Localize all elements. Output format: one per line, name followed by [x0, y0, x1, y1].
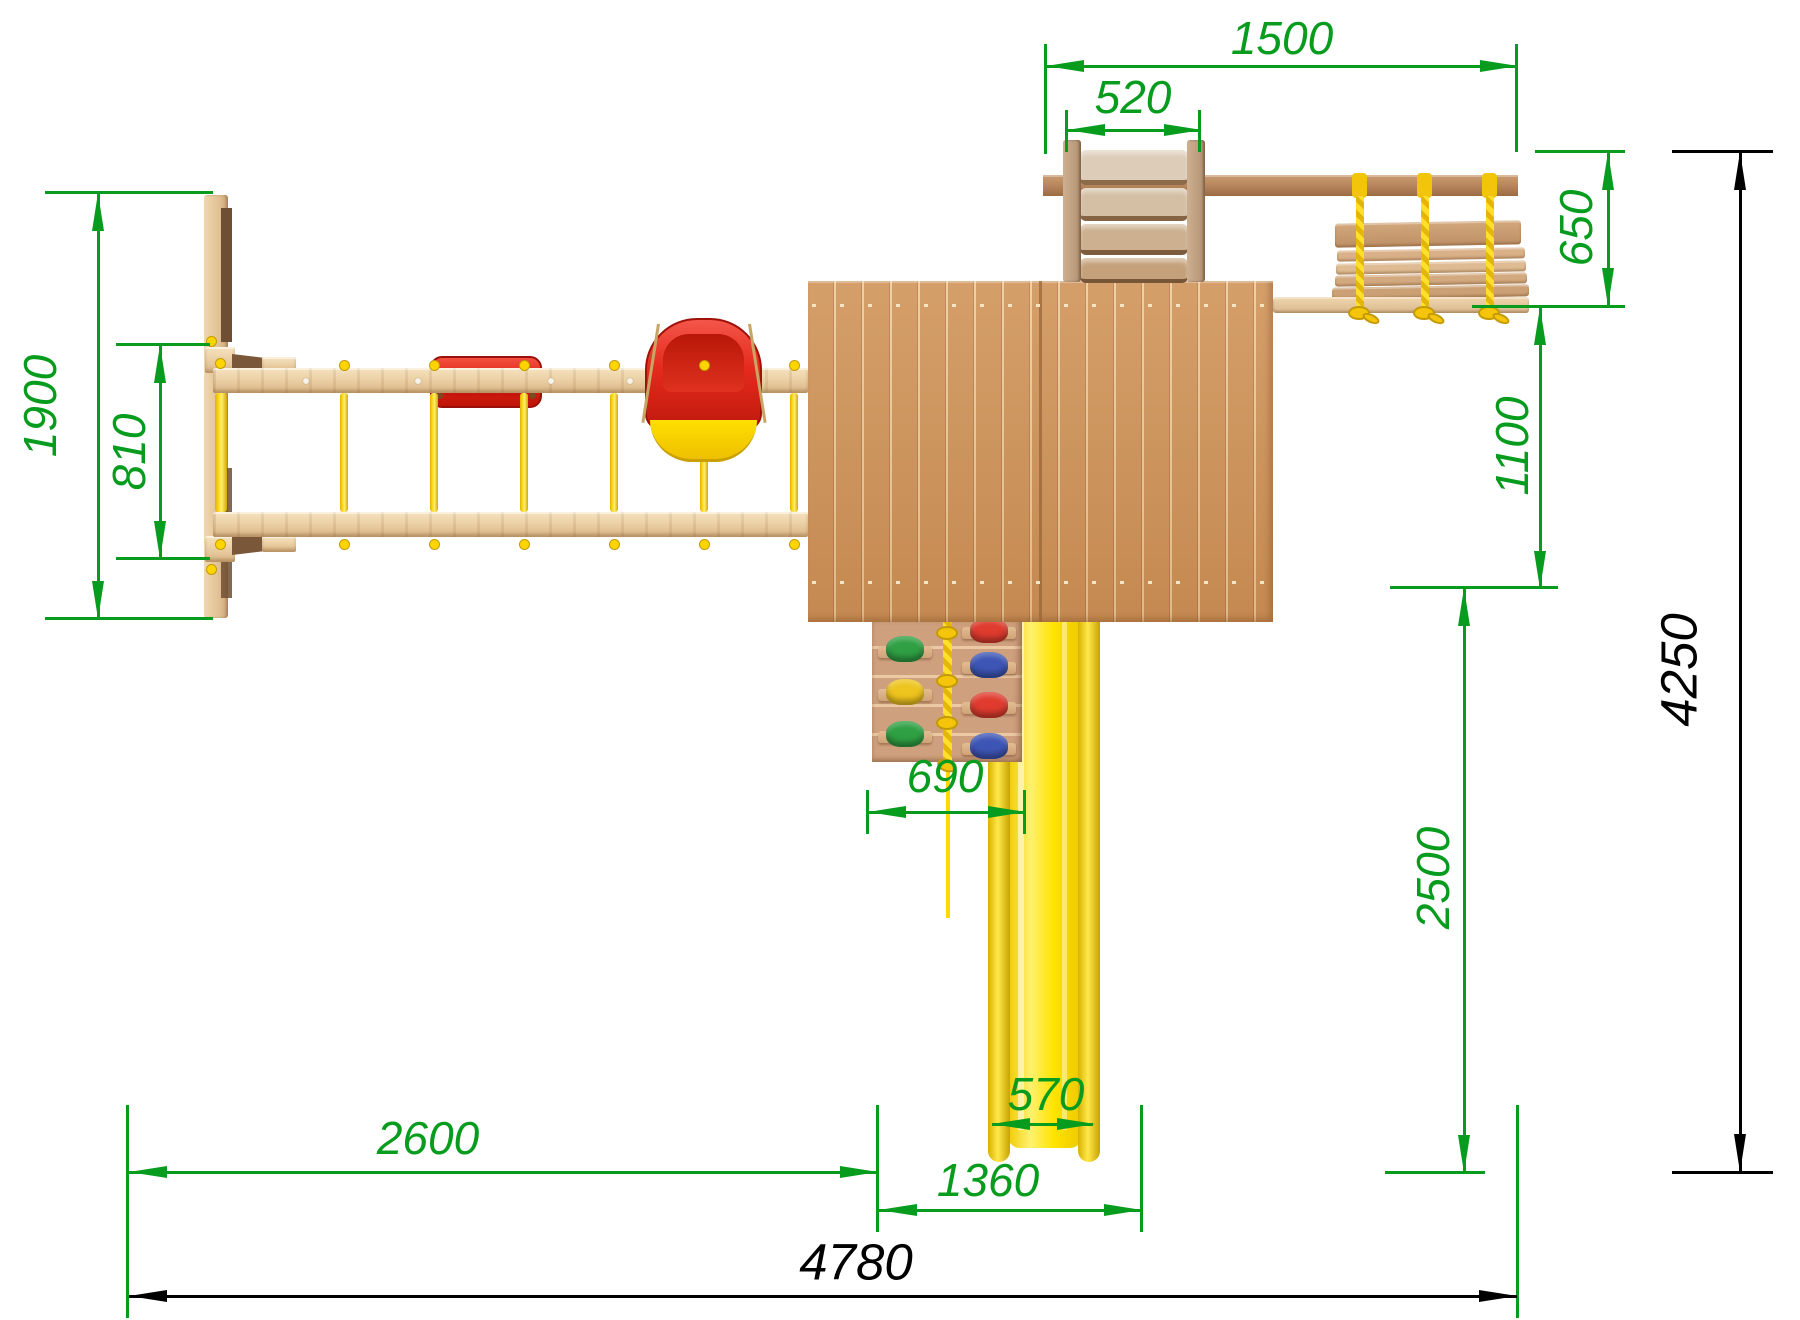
monkeybar-rung — [215, 393, 227, 512]
dim-1900-line — [97, 194, 100, 618]
dim-1100-arrow-up — [1534, 307, 1546, 345]
bench-rope — [1421, 196, 1429, 308]
dim-2500-ext-bottom — [1385, 1171, 1485, 1174]
ladder-step — [1080, 224, 1188, 255]
climbing-hold-red — [970, 692, 1008, 718]
dim-690-label: 690 — [907, 753, 984, 799]
monkeybar-rung — [790, 393, 798, 512]
dim-1360-arrow-right — [1104, 1204, 1142, 1216]
dim-690-arrow-left — [868, 806, 906, 818]
rung-cap — [519, 360, 530, 371]
deck-seam — [1039, 281, 1042, 622]
climbing-hold-green — [886, 636, 924, 662]
monkeybar-rung — [430, 393, 438, 512]
climbing-hold-green — [886, 721, 924, 747]
rung-cap — [339, 539, 350, 550]
rung-cap — [429, 360, 440, 371]
rung-cap — [215, 358, 226, 369]
dim-4780-arrow-right — [1479, 1290, 1517, 1302]
dim-1900-arrow-down — [92, 581, 104, 619]
seat-rope-hole — [529, 392, 536, 399]
deck-screw-row — [812, 581, 1269, 584]
ladder-step — [1080, 188, 1188, 221]
dim-1100-label: 1100 — [1489, 397, 1535, 496]
dim-810-label: 810 — [106, 414, 152, 491]
dim-650-arrow-up — [1602, 152, 1614, 190]
dim-4780-arrow-left — [129, 1290, 167, 1302]
ladder-rail-left — [1063, 140, 1081, 282]
dim-1500-arrow-left — [1046, 60, 1084, 72]
dim-1500-line — [1046, 65, 1518, 68]
junction-block-small — [262, 536, 296, 552]
rail-bolt — [415, 378, 421, 384]
bench-seat-slat — [1337, 247, 1525, 261]
dim-810-arrow-down — [154, 521, 166, 559]
dim-1900-label: 1900 — [17, 355, 63, 457]
dim-1360-arrow-left — [879, 1204, 917, 1216]
dim-4780-label: 4780 — [799, 1237, 912, 1288]
rung-cap — [429, 539, 440, 550]
rung-cap — [215, 539, 226, 550]
rail-bolt — [303, 378, 309, 384]
dim-1100-line — [1539, 308, 1542, 587]
dim-810-arrow-up — [154, 345, 166, 383]
dim-1100-ext-bottom — [1390, 586, 1558, 589]
rung-cap — [699, 539, 710, 550]
climbing-hold-blue — [970, 652, 1008, 678]
drawing-canvas: 1900 810 1500 520 650 1100 — [0, 0, 1800, 1320]
dim-4250-label: 4250 — [1654, 613, 1705, 726]
dim-2500-arrow-down — [1458, 1135, 1470, 1173]
rung-cap — [339, 360, 350, 371]
rung-cap — [609, 539, 620, 550]
dim-570-label: 570 — [1008, 1071, 1085, 1117]
dim-650-label: 650 — [1553, 190, 1599, 267]
rope-knot — [936, 674, 958, 688]
dim-4780-line — [129, 1295, 1517, 1298]
dim-4250-arrow-up — [1734, 152, 1746, 190]
dim-2600-arrow-right — [840, 1166, 878, 1178]
rail-bolt — [627, 378, 633, 384]
bench-rope-wrap — [1352, 173, 1367, 198]
dim-520-arrow-right — [1164, 124, 1202, 136]
dim-1500-label: 1500 — [1231, 15, 1333, 61]
ladder-step — [1080, 258, 1188, 283]
dim-2500-label: 2500 — [1410, 827, 1456, 929]
rung-cap — [789, 539, 800, 550]
rung-cap — [699, 360, 710, 371]
ladder-step — [1080, 150, 1188, 185]
dim-520-label: 520 — [1095, 74, 1172, 120]
dim-1900-arrow-up — [92, 193, 104, 231]
dim-2500-line — [1463, 589, 1466, 1172]
bench-rope-wrap — [1482, 173, 1497, 198]
dim-1360-line — [879, 1209, 1141, 1212]
dim-2600-line — [129, 1171, 877, 1174]
frame-bolt-cap — [206, 564, 217, 575]
slide-bed-gloss — [1062, 600, 1067, 1130]
bench-rope-wrap — [1417, 173, 1432, 198]
dim-4250-line — [1739, 153, 1742, 1171]
ladder-rail-right — [1187, 140, 1205, 282]
monkeybar-rung — [610, 393, 618, 512]
dim-2600-arrow-left — [129, 1166, 167, 1178]
dim-4250-tick-top — [1672, 150, 1773, 153]
dim-1900-ext-bottom — [45, 617, 213, 620]
rope-knot — [936, 626, 958, 640]
dim-1900-ext-top — [45, 191, 213, 194]
monkeybar-rung — [520, 393, 528, 512]
baby-swing-bib-yellow — [650, 420, 757, 462]
climbing-hold-yellow — [886, 679, 924, 705]
swing-brace-dark — [221, 208, 232, 342]
dim-4250-tick-bottom — [1672, 1171, 1773, 1174]
monkeybar-rail-bottom — [213, 512, 808, 537]
ext-line-right — [1516, 1105, 1519, 1318]
rope-knot — [936, 716, 958, 730]
dim-1100-arrow-down — [1534, 551, 1546, 589]
deck-screw-row — [812, 304, 1269, 307]
dim-2600-label: 2600 — [377, 1115, 479, 1161]
dim-650-arrow-down — [1602, 268, 1614, 306]
dim-520-arrow-left — [1067, 124, 1105, 136]
rope-line — [943, 620, 952, 770]
rung-cap — [519, 539, 530, 550]
rung-cap — [789, 360, 800, 371]
dim-2500-arrow-up — [1458, 588, 1470, 626]
dim-1360-label: 1360 — [937, 1157, 1039, 1203]
rung-cap — [609, 360, 620, 371]
dim-690-arrow-right — [988, 806, 1026, 818]
dim-4250-arrow-down — [1734, 1134, 1746, 1172]
bench-rope — [1486, 196, 1494, 308]
ext-line-left — [126, 1105, 129, 1318]
rail-bolt — [548, 378, 554, 384]
dim-1500-arrow-right — [1480, 60, 1518, 72]
bench-rope — [1356, 196, 1364, 308]
monkeybar-rung — [340, 393, 348, 512]
